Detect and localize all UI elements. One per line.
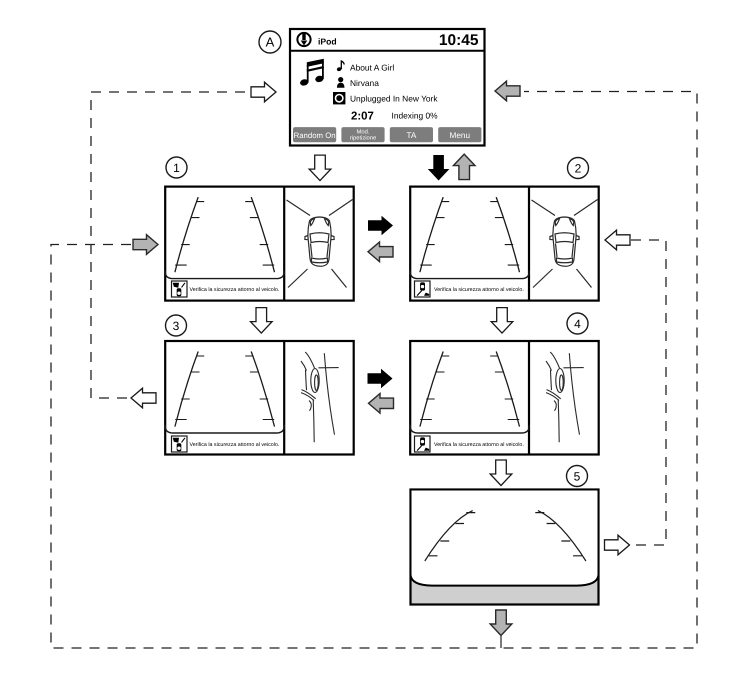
svg-text:Unplugged In New York: Unplugged In New York: [350, 94, 438, 104]
svg-text:Indexing 0%: Indexing 0%: [392, 110, 439, 120]
svg-text:A: A: [266, 35, 275, 50]
svg-text:Verifica la sicurezza attorno: Verifica la sicurezza attorno al veicolo…: [434, 442, 524, 448]
svg-text:Verifica la sicurezza attorno: Verifica la sicurezza attorno al veicolo…: [434, 287, 524, 293]
svg-text:TA: TA: [406, 131, 416, 140]
svg-text:3: 3: [173, 319, 180, 333]
svg-text:Nirvana: Nirvana: [350, 78, 379, 88]
svg-text:Random On: Random On: [294, 131, 336, 140]
svg-text:4: 4: [574, 317, 581, 331]
svg-text:Verifica la sicurezza attorno: Verifica la sicurezza attorno al veicolo…: [190, 287, 280, 293]
svg-text:About A Girl: About A Girl: [350, 63, 394, 73]
svg-text:5: 5: [574, 470, 581, 484]
svg-text:Mod.: Mod.: [357, 128, 370, 135]
svg-text:Verifica la sicurezza attorno: Verifica la sicurezza attorno al veicolo…: [190, 442, 280, 448]
svg-text:10:45: 10:45: [439, 32, 479, 49]
svg-text:1: 1: [173, 161, 180, 175]
svg-text:iPod: iPod: [318, 37, 337, 47]
svg-text:ripetizione: ripetizione: [350, 135, 376, 142]
svg-text:2: 2: [575, 162, 582, 176]
svg-text:Menu: Menu: [450, 131, 471, 140]
svg-text:2:07: 2:07: [351, 110, 374, 122]
